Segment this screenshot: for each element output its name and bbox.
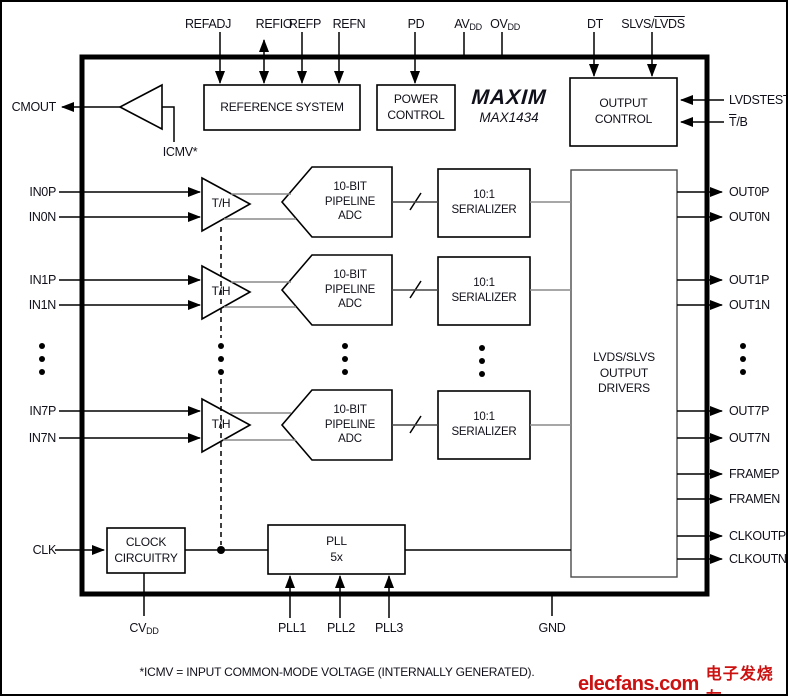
part-number: MAX1434 [454,110,564,125]
watermark-site: elecfans.com [578,673,699,696]
pin-clk: CLK [2,542,56,558]
pin-clkoutn: CLKOUTN [729,551,788,567]
pin-in7p: IN7P [2,403,56,419]
pin-out1p: OUT1P [729,272,788,288]
pin-in0n: IN0N [2,209,56,225]
pin-slvs-lvds: SLVS/LVDS [603,16,703,32]
reference-system-label: REFERENCE SYSTEM [204,85,360,130]
pin-in1p: IN1P [2,272,56,288]
footnote: *ICMV = INPUT COMMON-MODE VOLTAGE (INTER… [117,665,557,679]
serializer-label-0: 10:1SERIALIZER [438,169,530,237]
pin-out1n: OUT1N [729,297,788,313]
th-label-0: T/H [205,196,237,212]
th-label-7: T/H [205,417,237,433]
pin-ovdd: OVDD [465,16,545,32]
pin-framep: FRAMEP [729,466,788,482]
adc-label-7: 10-BITPIPELINEADC [304,390,396,460]
pin-in0p: IN0P [2,184,56,200]
pin-gnd: GND [517,620,587,636]
watermark-cjk: 电子发烧友 [706,660,786,696]
adc-label-0: 10-BITPIPELINEADC [304,167,396,237]
output-control-label: OUTPUTCONTROL [570,78,677,146]
pin-in7n: IN7N [2,430,56,446]
pin-cmout: CMOUT [2,99,56,115]
pll-label: PLL5x [268,525,405,574]
pin-out7n: OUT7N [729,430,788,446]
pin-out0n: OUT0N [729,209,788,225]
clock-circuitry-label: CLOCKCIRCUITRY [107,528,185,573]
pin-out7p: OUT7P [729,403,788,419]
power-control-label: POWERCONTROL [377,85,455,130]
serializer-label-7: 10:1SERIALIZER [438,391,530,459]
th-label-1: T/H [205,284,237,300]
pin-lvdstest: LVDSTEST [729,92,788,108]
maxim-logo: MAXIM [453,86,565,110]
serializer-label-1: 10:1SERIALIZER [438,257,530,325]
pin-tb: T/B [729,114,788,130]
pin-out0p: OUT0P [729,184,788,200]
max1434-block-diagram: REFADJ REFIO REFP REFN PD AVDD OVDD DT S… [0,0,788,696]
pin-in1n: IN1N [2,297,56,313]
pin-framen: FRAMEN [729,491,788,507]
pin-cvdd: CVDD [109,620,179,636]
adc-label-1: 10-BITPIPELINEADC [304,255,396,325]
pin-clkoutp: CLKOUTP [729,528,788,544]
icmv-label: ICMV* [152,144,208,160]
watermark: elecfans.com 电子发烧友 [578,660,786,696]
lvds-drivers-label: LVDS/SLVSOUTPUTDRIVERS [571,170,677,577]
pin-pll3: PLL3 [354,620,424,636]
